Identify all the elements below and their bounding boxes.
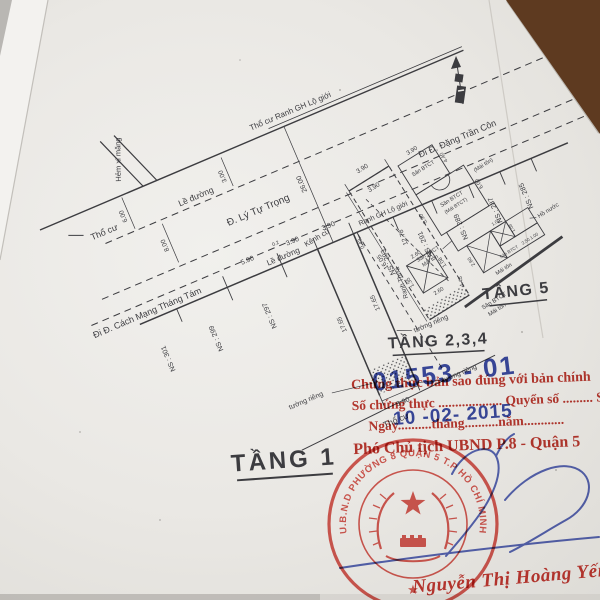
label-to-street-left: Đi Đ. Cách Mạng Tháng Tám [92,285,203,340]
dim-5-top: 3.90 [406,145,420,157]
signer-name: Nguyễn Thị Hoàng Yến [410,560,600,598]
dim-5-left: 5.90 [418,212,429,224]
shadow-bottom [0,594,320,600]
house-297: NS : 297 [262,301,279,329]
dim-234-front-inner: 3.90 [367,181,382,194]
photo-scene: Thổ cư Ranh GH Lộ giới Hẻm xi măng Thổ c… [0,0,600,600]
dim-frontage-2: 3.90 [285,236,300,248]
dim-frontage-1: 5.90 [240,255,255,267]
dim-234-front: 3.90 [355,163,370,176]
label-party-wall-2: tường riêng [288,391,324,412]
dim-5-c1: 2.60 [467,256,477,268]
title-tang5: TẦNG 5 [481,278,551,307]
label-residential-left: Thổ cư [89,222,119,242]
paper-edge-left [0,0,48,260]
svg-text:TẦNG 2,3,4: TẦNG 2,3,4 [387,328,488,352]
dim-frontage-3: 3.90 [321,221,336,233]
house-299: NS : 299 [208,324,225,352]
document-paper: Thổ cư Ranh GH Lộ giới Hẻm xi măng Thổ c… [0,0,600,600]
house-285: NS : 285 [518,182,535,210]
svg-text:TẦNG 5: TẦNG 5 [481,278,550,304]
national-emblem [369,491,457,561]
label-5-terrace-top: Sân BTCT [411,159,436,178]
label-5-water-tank: Hồ nước [537,202,560,220]
plan-234: 3.90 3.90 12.78 16.05 2.60 1.35 1.08 2.6… [331,151,474,327]
house-301: NS : 301 [160,344,177,372]
dim-cross: 26.00 [296,174,309,193]
label-alley: Hẻm xi măng [113,137,123,181]
label-to-street-right: Đi Đ. Đặng Trần Côn [417,118,498,160]
drawing-canvas: Thổ cư Ranh GH Lộ giới Hẻm xi măng Thổ c… [0,0,600,600]
title-tang234: TẦNG 2,3,4 [387,328,488,355]
svg-text:TẦNG 1: TẦNG 1 [230,442,338,477]
north-arrow-icon [451,56,466,104]
label-5-roof-metal-right: (Mái tôn) [473,157,495,174]
dim-234-length-inner: 12.78 [398,228,410,246]
dim-234-void-left: 1.35 [405,276,416,288]
dim-234-rear-diag: 4.45 [458,276,466,288]
dim-jog: 0.2 [271,240,280,248]
dim-5-c3: 1.08 [507,223,516,233]
title-tang1: TẦNG 1 [230,442,338,480]
svg-text:Nguyễn Thị Hoàng Yến: Nguyễn Thị Hoàng Yến [410,560,600,598]
dim-234-void-bottom: 2.60 [433,286,445,297]
